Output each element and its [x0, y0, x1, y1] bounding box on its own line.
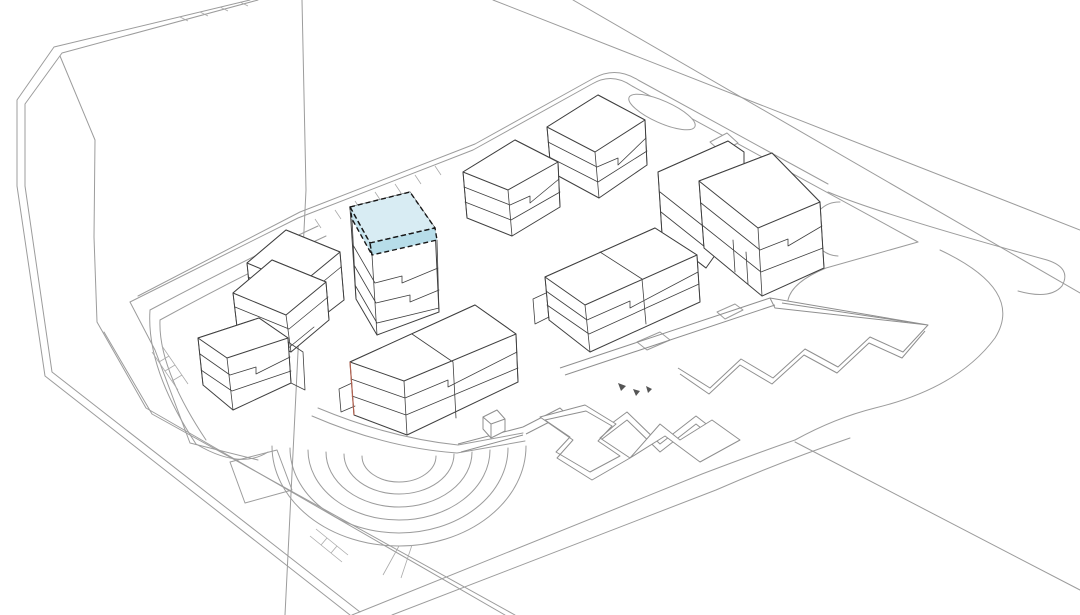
- road-south-edge-2: [392, 438, 850, 615]
- road-southeast-corner-curve: [795, 250, 1003, 440]
- stairs-west: [152, 346, 188, 390]
- walkway-wedge-inner: [782, 303, 908, 322]
- site-plan-drawing: [0, 0, 1080, 615]
- planting-mark-3: [646, 386, 652, 393]
- buildings: [198, 95, 824, 435]
- amphitheater-step-6: [362, 456, 436, 482]
- road-east-curb: [828, 192, 1065, 295]
- planting-mark-1: [618, 383, 626, 391]
- walkway-east-zigzag-inner: [680, 331, 925, 394]
- zigzag-walkways: [458, 298, 928, 480]
- amphitheater-step-4: [326, 452, 472, 507]
- building-north-tower-rear[interactable]: [547, 95, 647, 198]
- amphitheater-step-3: [308, 450, 490, 520]
- site-plan-canvas: [0, 0, 1080, 615]
- building-east[interactable]: [699, 153, 824, 296]
- building-central-twin[interactable]: [533, 228, 700, 352]
- stairs-southwest: [310, 529, 348, 562]
- building-highlighted[interactable]: [350, 192, 439, 335]
- walkway-bolt-2: [630, 420, 740, 462]
- planting-mark-2: [633, 389, 640, 396]
- amphitheater-step-5: [344, 454, 454, 494]
- terrace-southwest: [230, 450, 292, 503]
- road-southeast-diagonal: [795, 442, 1080, 590]
- amphitheater-step-1: [272, 446, 526, 546]
- walkway-kiosk: [483, 410, 505, 438]
- building-north-tower-front[interactable]: [463, 140, 560, 236]
